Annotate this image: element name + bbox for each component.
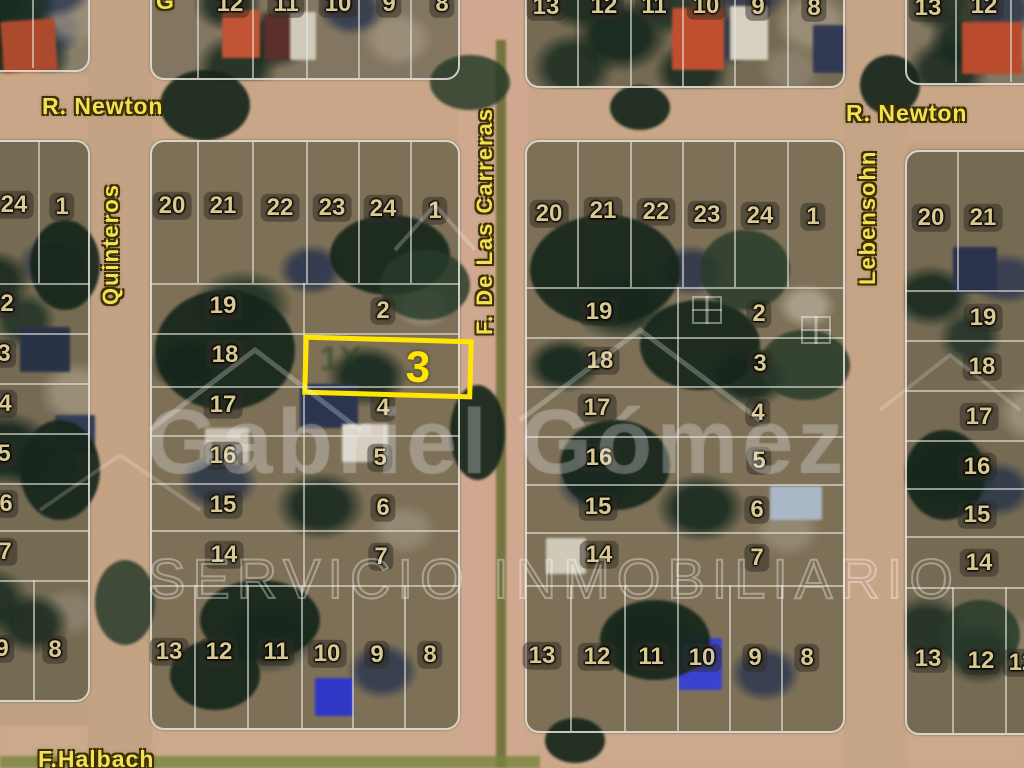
lot-number: 10 [308, 640, 347, 668]
lot-number: 5 [0, 440, 17, 468]
lot-number: 12 [1003, 649, 1024, 677]
lot-number: 12 [578, 643, 617, 671]
lot-number: 3 [0, 340, 17, 368]
street-label-newton-right: R. Newton [846, 100, 967, 127]
lot-number: 13 [909, 0, 948, 22]
lot-number: 22 [637, 198, 676, 226]
watermark-agent-name: Gabriel Gómez [146, 390, 906, 495]
lot-number: 24 [364, 195, 403, 223]
watermark-tagline: SERVICIO INMOBILIARIO [148, 546, 908, 611]
lot-number: 15 [204, 491, 243, 519]
lot-number: 11 [635, 0, 672, 20]
lot-number: 2 [746, 300, 771, 328]
lot-number: 13 [527, 0, 566, 21]
street-label-newton-left: R. Newton [42, 93, 163, 120]
highlighted-lot-number: 3 [405, 343, 431, 394]
lot-number: 10 [319, 0, 358, 18]
lot-number: 12 [585, 0, 624, 20]
lot-number: 11 [632, 643, 669, 671]
lot-number: 6 [0, 490, 19, 518]
lot-number: 12 [200, 638, 239, 666]
lot-number: 16 [958, 453, 997, 481]
street-label-quinteros: Quinteros [98, 125, 124, 305]
lot-number: 23 [313, 194, 352, 222]
lot-number: 21 [204, 192, 243, 220]
lot-number: 1 [800, 203, 825, 231]
lot-number: 8 [801, 0, 826, 22]
lot-number: 8 [794, 644, 819, 672]
lot-number: 13 [909, 645, 948, 673]
street-label-lebensohn: Lebensohn [855, 125, 881, 285]
lot-number: 13 [523, 642, 562, 670]
lot-number: 1 [49, 193, 74, 221]
lot-number: 21 [584, 197, 623, 225]
lot-number: 15 [579, 493, 618, 521]
lot-number: 9 [742, 644, 767, 672]
lot-number: 6 [744, 496, 769, 524]
lot-number: 10 [687, 0, 726, 20]
lot-number: 8 [42, 636, 67, 664]
lot-number: 20 [530, 200, 569, 228]
lot-number: 9 [0, 635, 15, 663]
lot-number: 20 [153, 192, 192, 220]
lot-number: 11 [257, 638, 294, 666]
street-label-halbach: F.Halbach [38, 746, 154, 768]
lot-number: 15 [958, 501, 997, 529]
watermark-partial-mark: 1X [320, 340, 362, 379]
map-canvas: 1211109813121110981312241234567982021222… [0, 0, 1024, 768]
lot-number: 7 [0, 538, 18, 566]
watermark-window-icon [692, 296, 722, 324]
lot-number: 24 [741, 202, 780, 230]
street-label-carreras: F. De Las Carreras [472, 75, 498, 335]
lot-number: 9 [376, 0, 401, 18]
lot-number: 18 [206, 341, 245, 369]
lot-number: 2 [0, 290, 20, 318]
lot-number: 19 [204, 292, 243, 320]
lot-number: 23 [688, 201, 727, 229]
lot-number: 2 [370, 297, 395, 325]
lot-number: 19 [964, 304, 1003, 332]
lot-number: 9 [745, 0, 770, 21]
lot-number: 12 [965, 0, 1004, 20]
lot-number: 8 [417, 641, 442, 669]
lot-number: 20 [912, 204, 951, 232]
lot-number: 18 [963, 353, 1002, 381]
lot-number: 1 [422, 197, 447, 225]
lot-number: 17 [960, 403, 999, 431]
lot-number: 6 [370, 494, 395, 522]
lot-number: 11 [267, 0, 304, 18]
lot-number: 14 [960, 549, 999, 577]
lot-number: 22 [261, 194, 300, 222]
lot-number: 12 [962, 647, 1001, 675]
lot-number: 10 [683, 644, 722, 672]
lot-number: 13 [150, 638, 189, 666]
watermark-window-icon [801, 316, 831, 344]
lot-number: 8 [429, 0, 454, 18]
lot-number: 19 [580, 298, 619, 326]
lot-number: 3 [747, 350, 772, 378]
lot-number: 21 [964, 204, 1003, 232]
lot-number: 24 [0, 191, 33, 219]
lot-number: 12 [211, 0, 250, 18]
lot-number: 4 [0, 390, 18, 418]
street-label-partial-top: G [156, 0, 175, 15]
parcel-overlay: 1211109813121110981312241234567982021222… [0, 0, 1024, 768]
lot-number: 18 [581, 347, 620, 375]
lot-number: 9 [364, 641, 389, 669]
